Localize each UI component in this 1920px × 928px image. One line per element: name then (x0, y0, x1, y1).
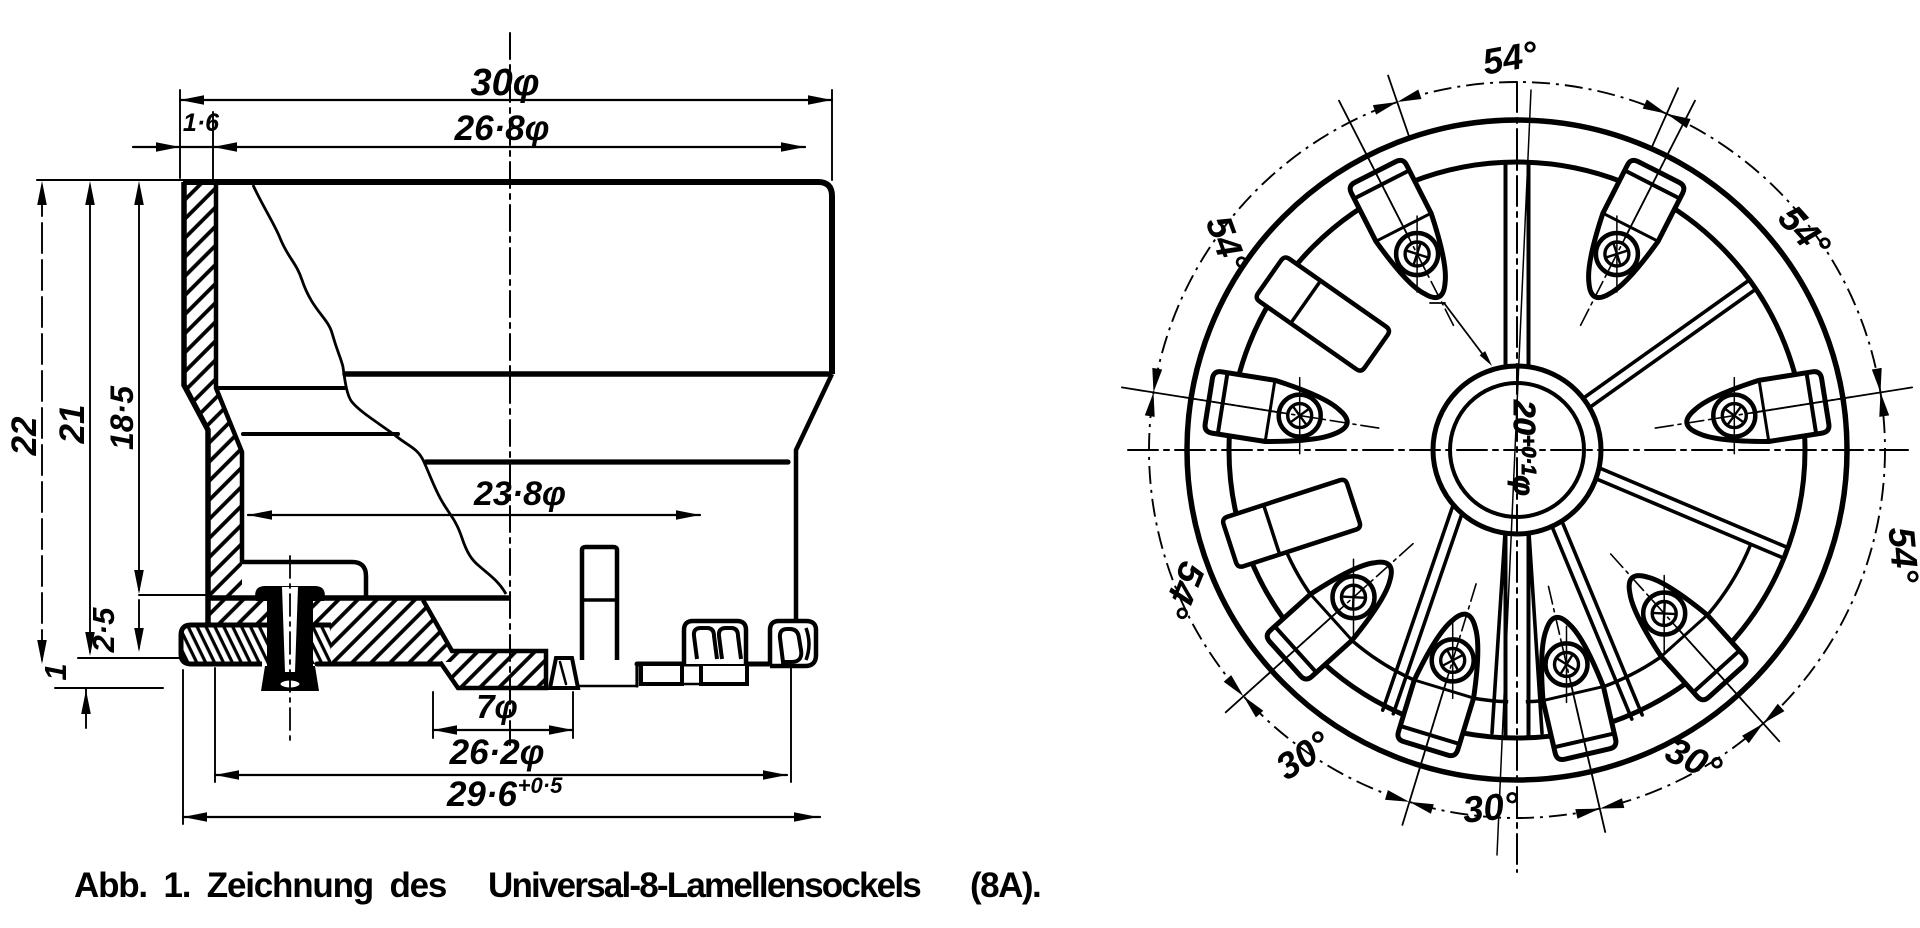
svg-text:Universal-8-Lamellensockels: Universal-8-Lamellensockels (488, 866, 921, 905)
svg-text:23·8φ: 23·8φ (473, 475, 566, 513)
svg-text:22: 22 (5, 416, 44, 456)
svg-text:30°: 30° (1461, 784, 1521, 831)
svg-text:26·8φ: 26·8φ (454, 109, 550, 148)
svg-text:1·6: 1·6 (183, 109, 220, 137)
svg-text:7φ: 7φ (476, 688, 518, 725)
svg-text:18·5: 18·5 (104, 385, 140, 450)
svg-text:29·6: 29·6 (446, 775, 518, 814)
svg-text:21: 21 (53, 405, 92, 445)
svg-text:1: 1 (38, 663, 73, 680)
svg-text:30φ: 30φ (470, 62, 539, 104)
svg-text:26·2φ: 26·2φ (449, 733, 545, 772)
svg-text:+0·5: +0·5 (518, 773, 563, 798)
svg-text:2·5: 2·5 (86, 607, 121, 654)
svg-text:(8A).: (8A). (970, 866, 1040, 905)
svg-text:54°: 54° (1881, 525, 1920, 585)
svg-text:Abb. 1. Zeichnung des: Abb. 1. Zeichnung des (74, 866, 447, 905)
